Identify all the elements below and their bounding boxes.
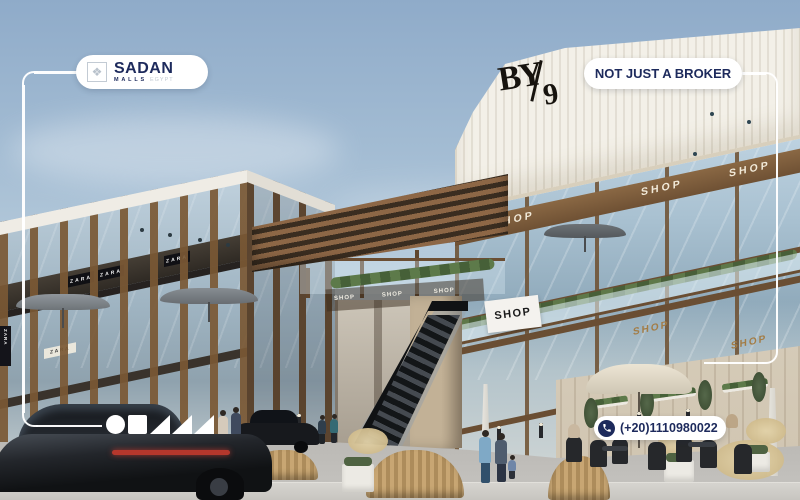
sadan-logo-text: SADAN MALLS EGYPT [114,61,174,84]
phone-icon [598,420,615,437]
sadan-ornament-icon: ❖ [87,62,107,82]
car-taillight [112,450,230,455]
tagline-text: NOT JUST A BROKER [595,66,731,81]
car-wheel [196,468,244,500]
potted-tree [698,380,712,410]
render-scene: SHOP SHOP SHOP SHOP SHOP BY 9 ZARA ZARA … [0,0,800,500]
seated-person [726,414,738,428]
cloud [10,115,340,185]
person [318,415,326,444]
pampas-grass [348,428,388,454]
umbrella-pole [208,302,210,322]
pendant-lamp [693,152,697,156]
shop-hanging-sign: SHOP [484,295,541,333]
child [508,455,516,479]
pendant-lamp [168,233,172,237]
white-planter [664,460,694,482]
square-shape-icon [128,415,147,434]
shop-sign: SHOP [434,288,455,295]
phone-badge: (+20)1110980022 [594,416,726,440]
pendant-lamp [140,228,144,232]
cafe-chair [566,436,582,462]
terrace-umbrella [16,294,110,330]
seated-person [568,424,580,438]
brand-subtitle: MALLS [114,78,147,84]
zara-vertical-sign: ZARA [0,326,11,366]
pendant-lamp [226,243,230,247]
shop-sign: SHOP [729,159,771,180]
brand-subtitle-note: EGYPT [150,78,174,84]
pendant-lamp [710,112,714,116]
white-planter [342,464,374,492]
umbrella-pole [584,236,586,252]
phone-number: (+20)1110980022 [620,421,718,435]
circle-shape-icon [106,415,125,434]
cafe-table [602,446,628,451]
umbrella-canopy [586,364,692,394]
cafe-table [688,442,716,447]
shop-sign: SHOP [334,294,355,301]
cafe-chair [648,442,666,470]
decor-frame-line [34,71,78,74]
potted-tree [752,372,766,402]
umbrella-pole [62,308,64,328]
tagline-badge: NOT JUST A BROKER [584,58,742,89]
by9-building-logo: BY 9 [496,51,577,123]
pendant-lamp [747,120,751,124]
shop-sign: SHOP [641,178,683,199]
decor-frame-line [36,425,102,428]
person [479,430,491,483]
terrace-umbrella [544,224,626,254]
brand-name: SADAN [114,61,174,77]
pendant-lamp [198,238,202,242]
person [330,414,338,443]
cafe-chair [612,438,628,464]
cafe-chair [734,444,752,474]
shop-sign: SHOP [382,291,403,298]
person [495,433,507,482]
terrace-umbrella [160,288,258,324]
decor-frame-line [22,85,25,413]
by9-logo-text-bottom: 9 [541,77,561,113]
light-bollard [539,423,543,438]
decor-frame-line [704,362,764,365]
decor-frame-line [776,86,779,350]
cafe-chair [590,440,607,467]
sadan-logo-badge: ❖ SADAN MALLS EGYPT [76,55,208,89]
